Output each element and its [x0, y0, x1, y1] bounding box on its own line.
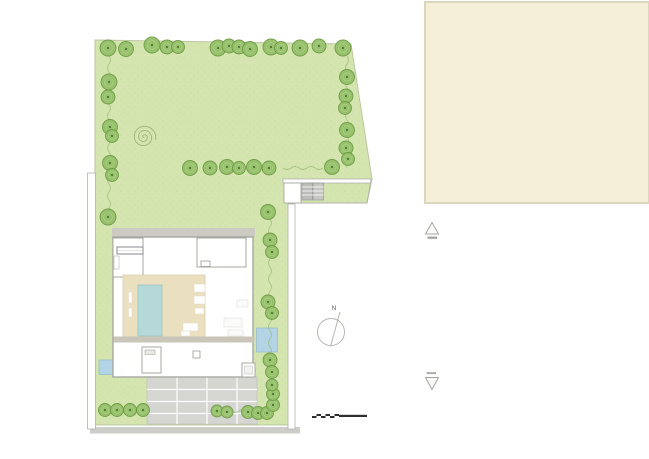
tree-icon [339, 89, 353, 103]
tree-icon [266, 366, 279, 379]
pond-east [257, 328, 278, 352]
compass-needle [331, 312, 341, 347]
tree-icon [243, 42, 258, 57]
scale-bar [312, 414, 367, 418]
site-plan-drawing: N [0, 0, 649, 459]
triangle-up-icon [426, 223, 439, 235]
driveway-paving [147, 377, 257, 424]
compass-circle [318, 319, 345, 346]
entry-marker-south [426, 372, 439, 390]
house [113, 237, 255, 377]
tree-icon [275, 42, 288, 55]
tree-icon [292, 40, 308, 56]
tree-icon [106, 130, 119, 143]
tree-icon [325, 160, 340, 175]
tree-icon [342, 153, 355, 166]
tree-icon [262, 161, 276, 175]
tree-icon [233, 162, 246, 175]
site-plan-canvas: N [0, 0, 649, 459]
annex-steps [302, 183, 324, 200]
street [90, 427, 300, 434]
boundary-wall-east [288, 204, 295, 429]
tree-icon [103, 156, 118, 171]
north-label: N [332, 306, 336, 312]
tree-icon [312, 39, 326, 53]
tree-icon [335, 40, 351, 56]
pond-west [99, 360, 113, 375]
tree-icon [263, 353, 277, 367]
triangle-down-icon [426, 378, 439, 390]
boundary-wall-west [88, 173, 96, 429]
annex-room [284, 183, 301, 203]
shrub-icon [137, 404, 150, 417]
tree-icon [101, 90, 115, 104]
fixture-west [114, 256, 119, 269]
entry-marker-north [426, 223, 439, 239]
tree-icon [340, 70, 355, 85]
swimming-pool [138, 285, 162, 336]
terrace-edge [114, 337, 255, 343]
shrub-icon [99, 404, 112, 417]
tree-icon [119, 42, 134, 57]
boundary-wall-annex [283, 179, 371, 183]
tree-icon [340, 123, 355, 138]
north-path [112, 228, 255, 237]
tree-icon [172, 41, 185, 54]
tree-icon [263, 233, 277, 247]
tree-icon [266, 246, 279, 259]
tree-icon [106, 169, 119, 182]
tree-icon [339, 102, 352, 115]
tree-icon [183, 161, 198, 176]
shrub-icon [221, 406, 233, 418]
tree-icon [247, 160, 262, 175]
shrub-icon [124, 404, 137, 417]
shrub-icon [266, 379, 278, 391]
tree-icon [144, 37, 160, 53]
tree-icon [100, 40, 116, 56]
north-compass: N [318, 306, 345, 347]
fixture-south [193, 351, 200, 358]
shrub-icon [111, 404, 124, 417]
adjacent-building [425, 2, 649, 203]
tree-icon [266, 307, 279, 320]
tree-icon [100, 209, 116, 225]
stair-flight [145, 350, 155, 355]
tree-icon [203, 161, 217, 175]
fixture-northeast [201, 261, 210, 267]
tree-icon [261, 205, 276, 220]
tree-icon [101, 74, 117, 90]
